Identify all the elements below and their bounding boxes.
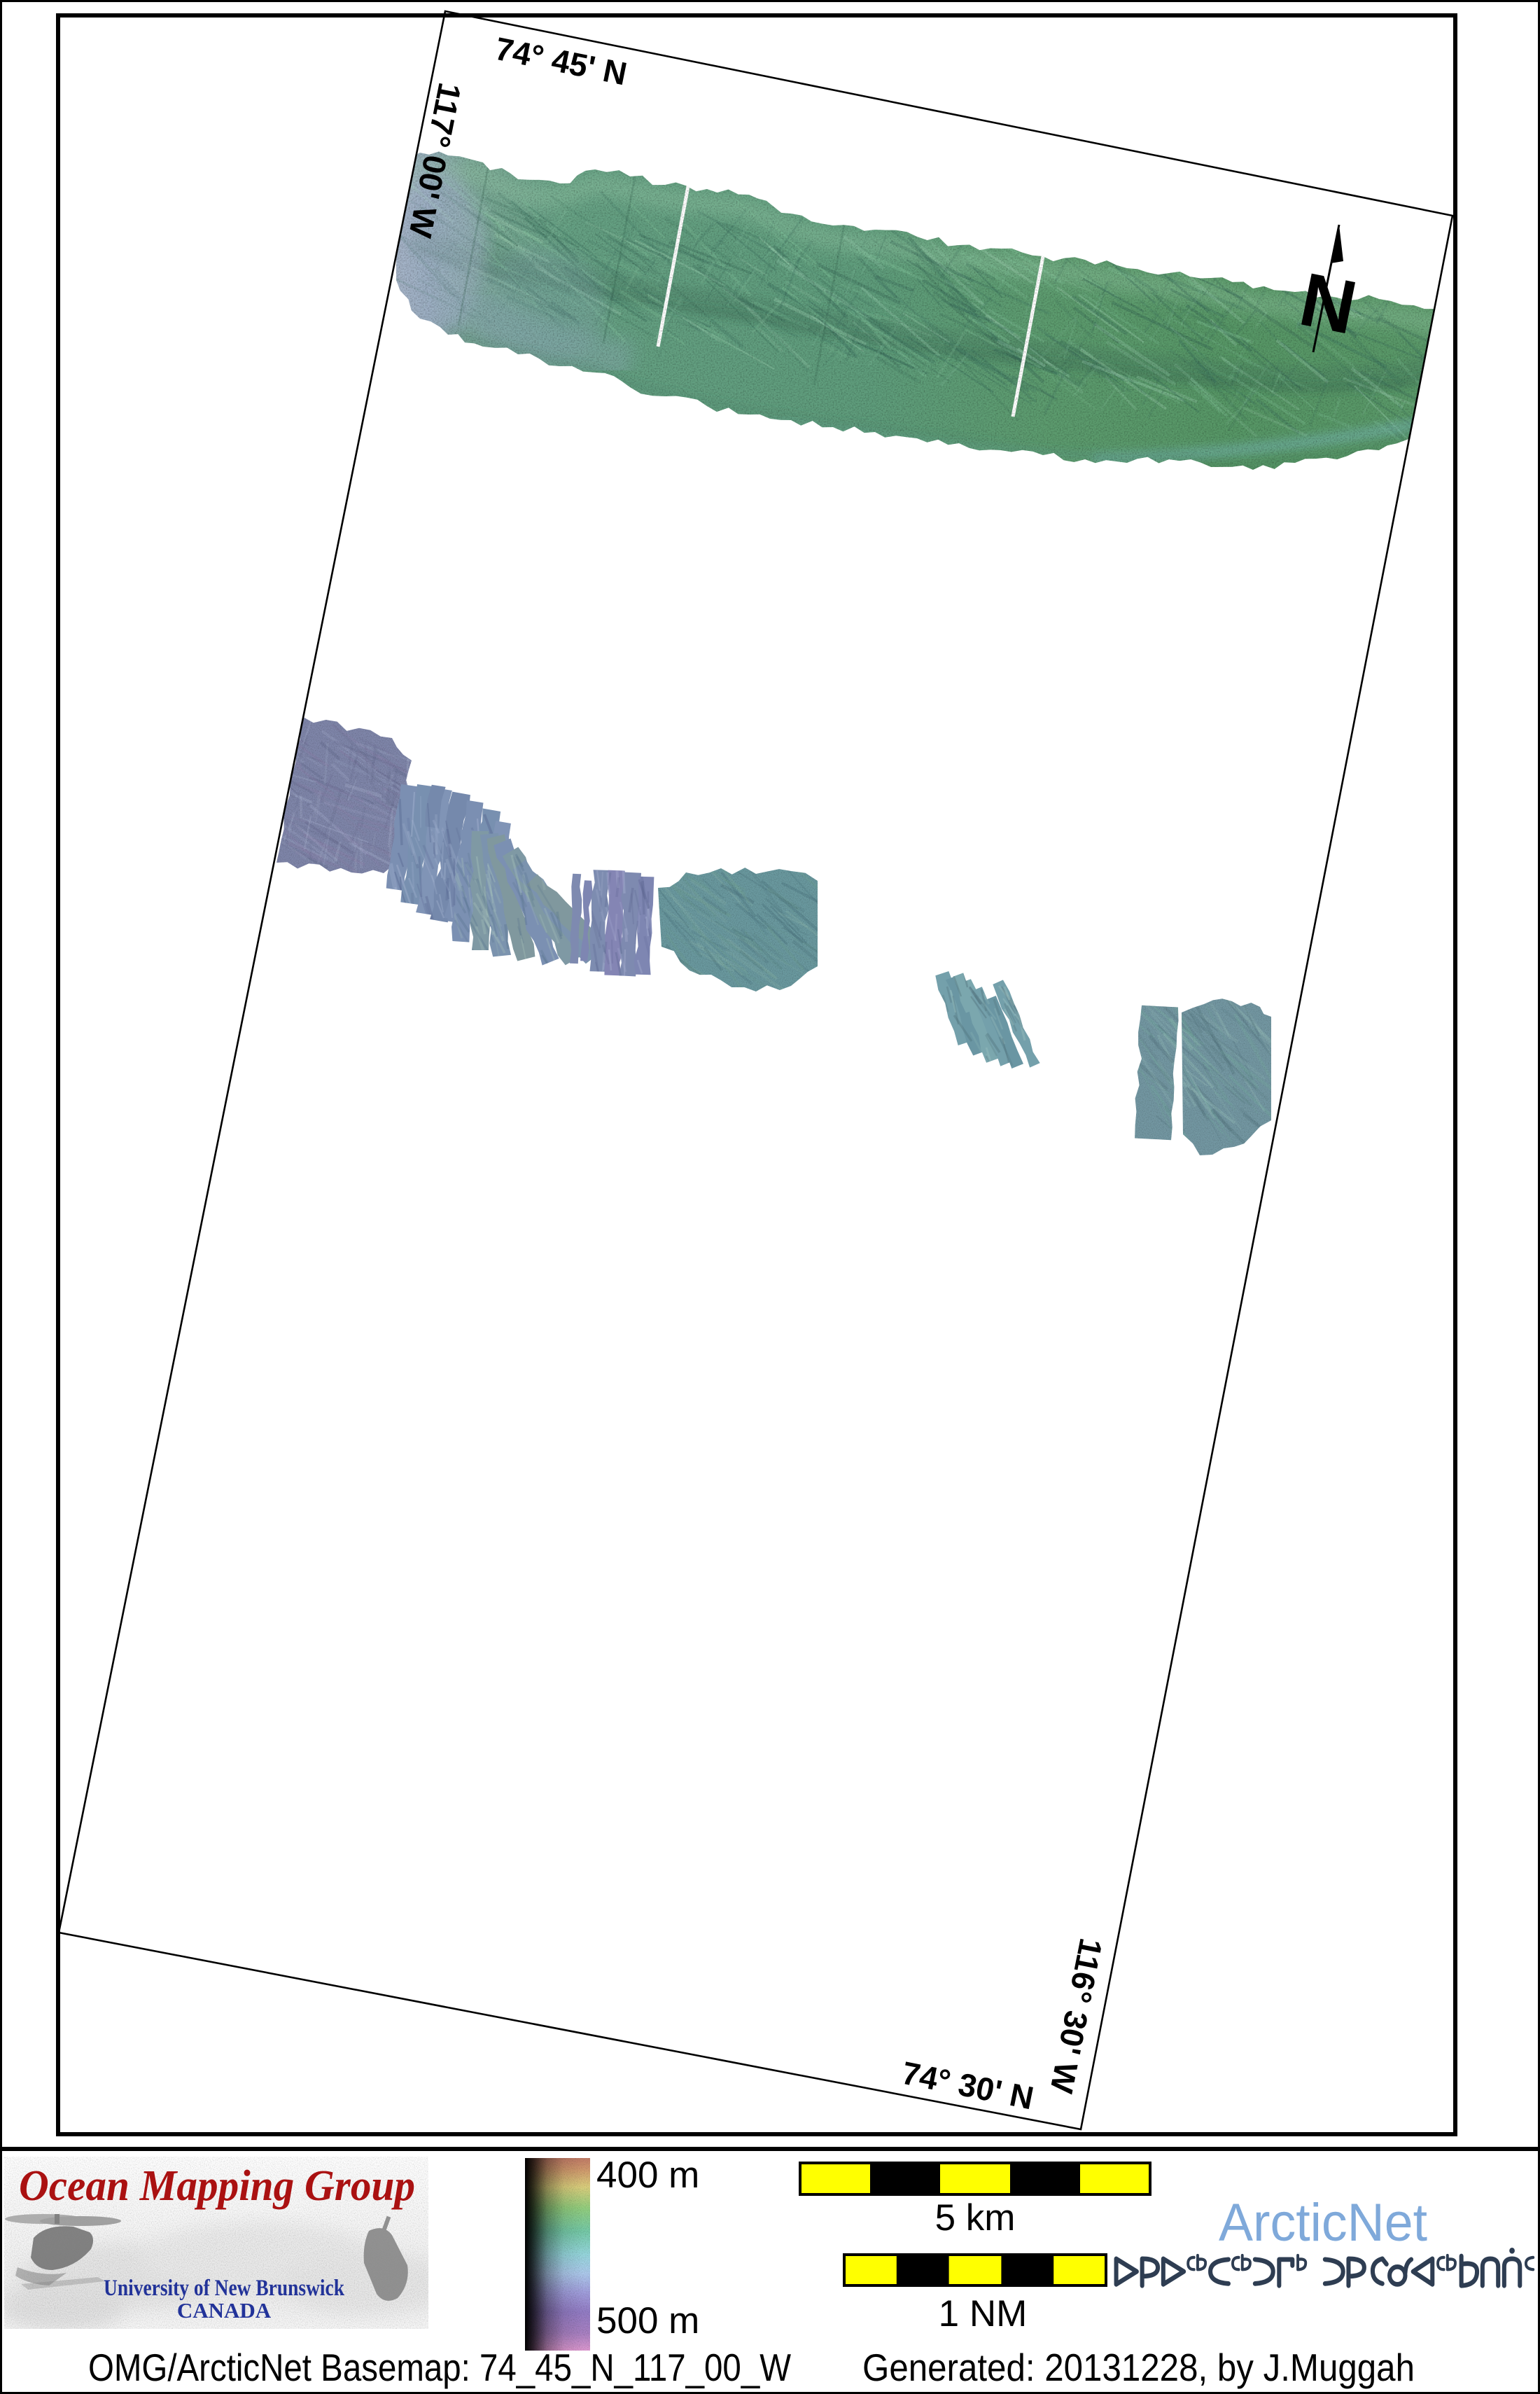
svg-text:OMG/ArcticNet Basemap: 74_45_N: OMG/ArcticNet Basemap: 74_45_N_117_00_W [88,2346,791,2389]
svg-text:Ocean Mapping Group: Ocean Mapping Group [19,2162,415,2210]
svg-text:5 km: 5 km [935,2197,1016,2239]
svg-text:CANADA: CANADA [177,2298,272,2323]
svg-text:University of New Brunswick: University of New Brunswick [104,2276,345,2301]
svg-text:500 m: 500 m [596,2300,699,2341]
svg-text:Generated: 20131228, by J.Mugg: Generated: 20131228, by J.Muggah [862,2346,1415,2389]
svg-text:400 m: 400 m [596,2155,699,2196]
svg-text:ArcticNet: ArcticNet [1219,2193,1427,2253]
svg-text:1 NM: 1 NM [939,2293,1028,2334]
